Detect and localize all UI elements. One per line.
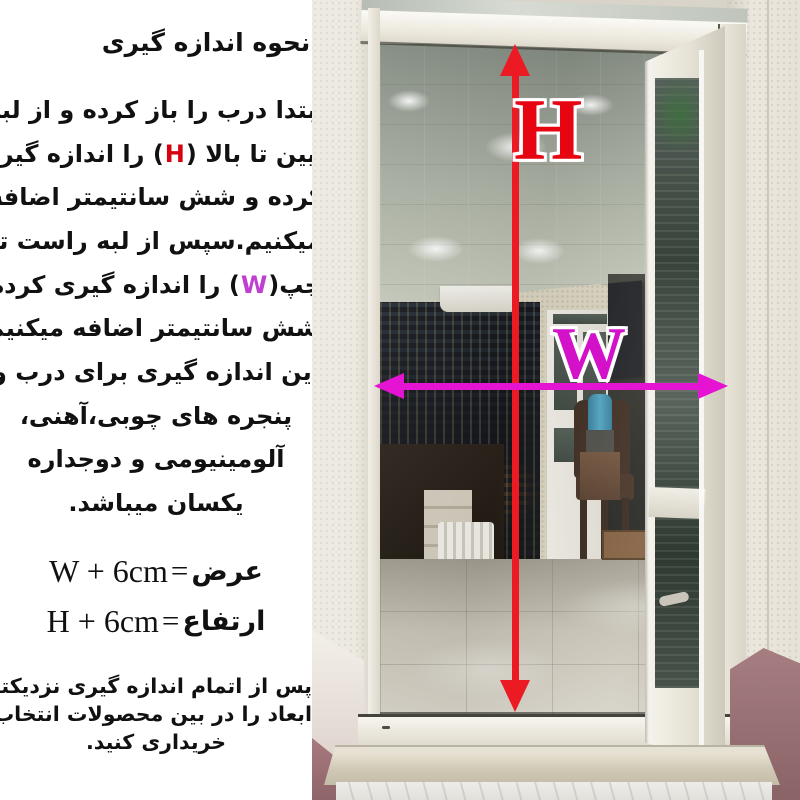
line-text: ) را اندازه گیری xyxy=(0,140,164,168)
instruction-line: چپ(W) را اندازه گیری کرده xyxy=(0,263,312,307)
instruction-line: یکسان میباشد. xyxy=(0,481,312,525)
instruction-line: کرده و شش سانتیمتر اضافه xyxy=(0,175,312,219)
instructions-panel: نحوه اندازه گیری ابتدا درب را باز کرده و… xyxy=(0,0,312,800)
height-key-inline: H xyxy=(164,140,186,168)
width-arrow-head-right xyxy=(698,373,728,399)
instruction-line: وشش سانتیمتر اضافه میکنیم. xyxy=(0,306,312,350)
width-formula: عرض = W + 6cm xyxy=(0,546,312,596)
open-door-mid-rail xyxy=(648,487,705,519)
footer-line: ابعاد را در بین محصولات انتخاب و xyxy=(0,700,312,728)
concrete-step xyxy=(324,745,780,785)
width-formula-expression: W + 6cm xyxy=(49,553,168,590)
measurement-infographic: نحوه اندازه گیری ابتدا درب را باز کرده و… xyxy=(0,0,800,800)
wall-corner-seam xyxy=(767,0,769,660)
footer-note: پس از اتمام اندازه گیری نزدیکترین ابعاد … xyxy=(0,672,312,756)
sill-screw xyxy=(382,726,390,729)
width-formula-label: عرض xyxy=(191,556,263,587)
instruction-line: میکنیم.سپس از لبه راست تا xyxy=(0,219,312,263)
instruction-line: آلومینیومی و دوجداره xyxy=(0,438,312,482)
height-formula-label: ارتفاع xyxy=(182,606,265,637)
height-label: H xyxy=(514,96,582,166)
line-text: میکنیم.سپس از لبه راست تا xyxy=(0,227,322,255)
instructions-body: ابتدا درب را باز کرده و از لبه پایین تا … xyxy=(0,88,312,525)
equals-sign: = xyxy=(161,603,180,639)
height-arrow-head-up xyxy=(500,44,530,76)
instruction-line: ابتدا درب را باز کرده و از لبه xyxy=(0,88,312,132)
doorway-photo: H W xyxy=(312,0,800,800)
height-formula: ارتفاع = H + 6cm xyxy=(0,596,312,646)
line-text: این اندازه گیری برای درب و xyxy=(0,358,320,386)
width-key-inline: W xyxy=(240,271,268,299)
footer-line: پس از اتمام اندازه گیری نزدیکترین xyxy=(0,672,312,700)
height-arrow-head-down xyxy=(500,680,530,712)
line-text: کرده و شش سانتیمتر اضافه xyxy=(0,183,323,211)
equals-sign: = xyxy=(170,553,189,589)
width-label: W xyxy=(552,322,626,386)
width-arrow-head-left xyxy=(374,373,404,399)
height-formula-expression: H + 6cm xyxy=(47,603,159,640)
marble-step xyxy=(336,782,772,800)
instruction-line: این اندازه گیری برای درب و xyxy=(0,350,312,394)
line-text: آلومینیومی و دوجداره xyxy=(28,445,285,473)
line-text: یکسان میباشد. xyxy=(68,489,243,517)
line-text: ابتدا درب را باز کرده و از لبه xyxy=(0,96,325,124)
instruction-line: پنجره های چوبی،آهنی، xyxy=(0,394,312,438)
instruction-line: پایین تا بالا (H) را اندازه گیری xyxy=(0,132,312,176)
open-door-stile-highlight xyxy=(699,50,704,750)
line-text: وشش سانتیمتر اضافه میکنیم. xyxy=(0,314,334,342)
formulas: عرض = W + 6cm ارتفاع = H + 6cm xyxy=(0,546,312,646)
line-text: پنجره های چوبی،آهنی، xyxy=(20,402,292,430)
line-text: ) را اندازه گیری کرده xyxy=(0,271,240,299)
footer-line: خریداری کنید. xyxy=(0,728,312,756)
